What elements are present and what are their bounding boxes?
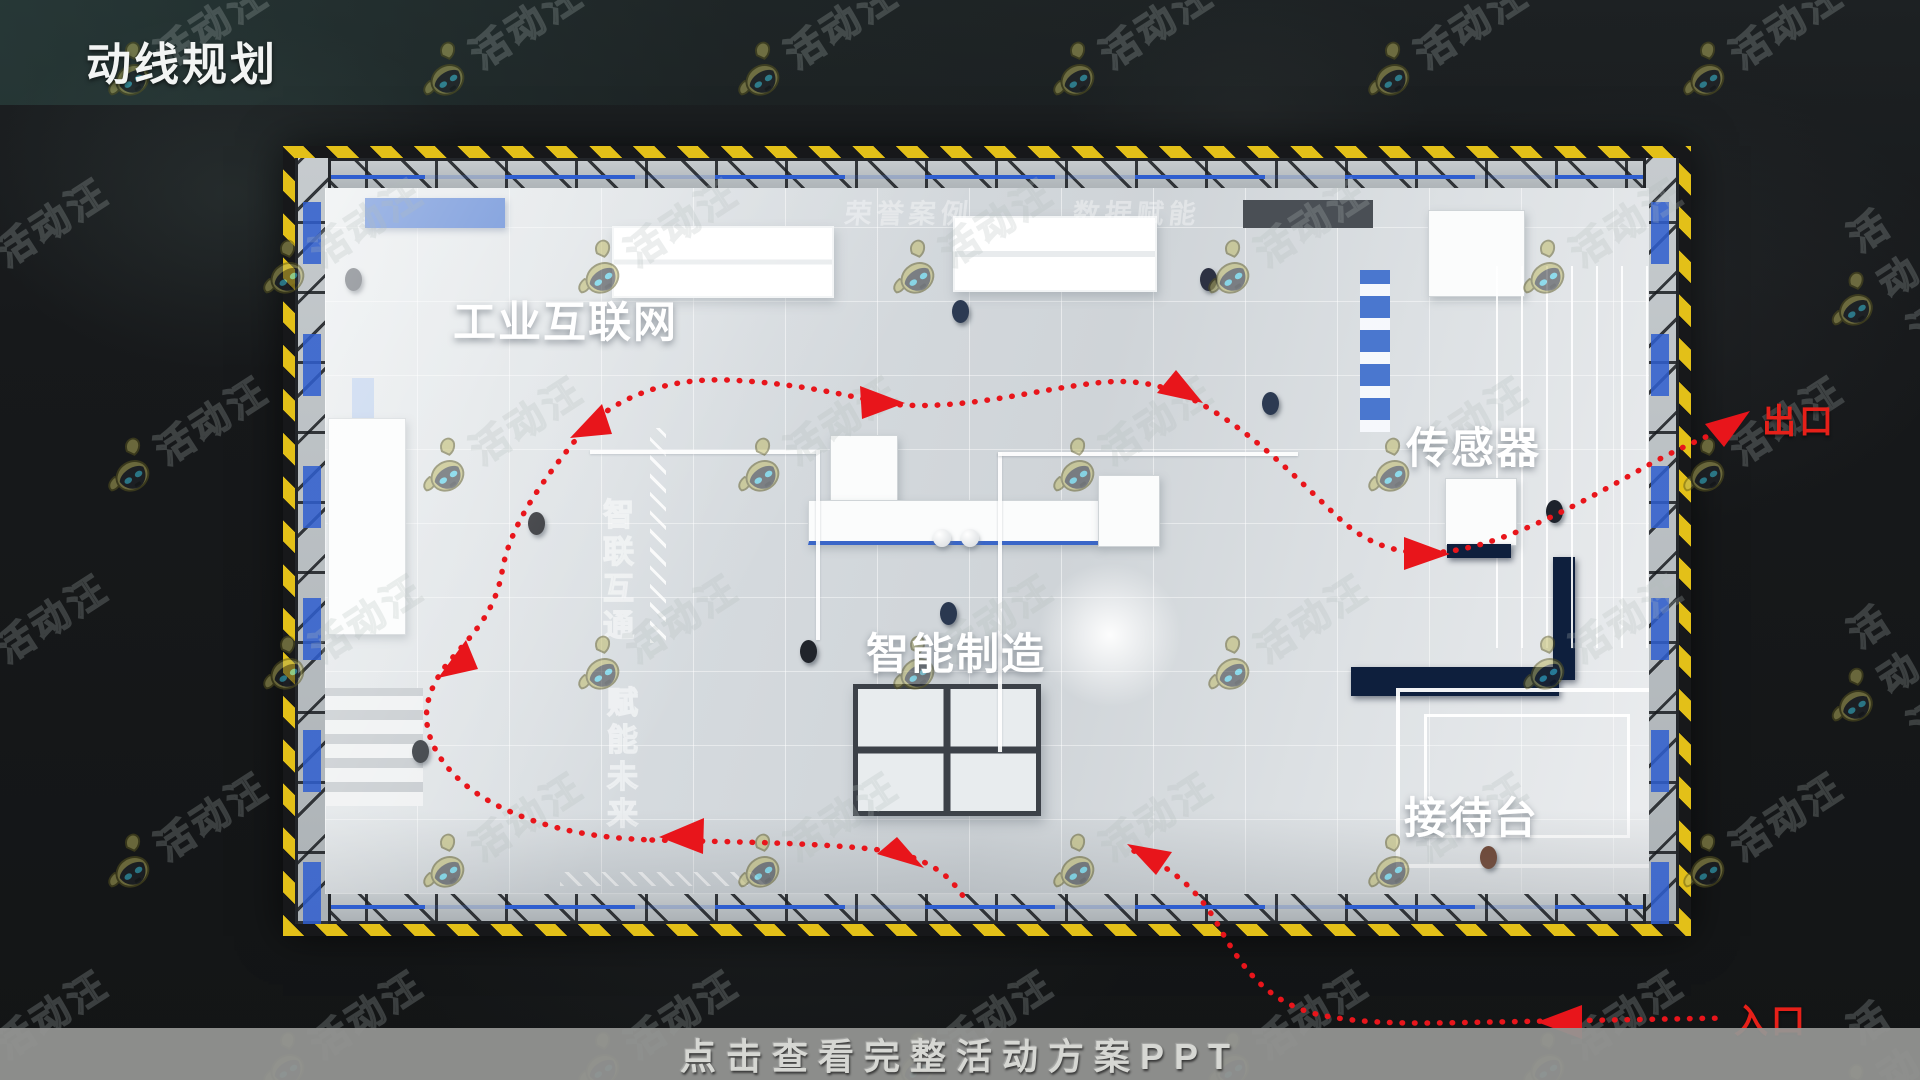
watermark-text: 活动汪 xyxy=(1835,193,1920,354)
booth-furniture xyxy=(816,450,820,640)
mascot-icon xyxy=(0,233,7,310)
mascot-icon xyxy=(1813,661,1890,738)
booth-furniture xyxy=(650,428,666,643)
brand-watermark: 活动汪 xyxy=(720,0,908,113)
mascot-icon xyxy=(0,629,7,706)
person-figure xyxy=(1546,500,1563,523)
floor-plan: 荣誉案例 数据赋能 智联互通 赋能未来 xyxy=(283,146,1691,936)
brand-watermark: 活动汪 xyxy=(0,161,118,310)
person-figure xyxy=(952,300,969,323)
booth-furniture xyxy=(998,452,1002,752)
watermark-text: 活动汪 xyxy=(1717,360,1853,475)
booth-furniture xyxy=(853,684,1041,816)
watermark-text: 活动汪 xyxy=(772,0,908,78)
booth-furniture xyxy=(933,529,951,547)
brand-watermark: 活动汪 xyxy=(1783,589,1920,784)
booth-furniture xyxy=(328,418,406,635)
person-figure xyxy=(1200,268,1217,291)
booth-furniture xyxy=(808,500,1100,545)
booth-furniture xyxy=(1447,544,1511,558)
watermark-text: 活动汪 xyxy=(0,162,118,277)
watermark-text: 活动汪 xyxy=(1087,0,1223,78)
header-tint xyxy=(0,0,1920,105)
watermark-text: 活动汪 xyxy=(142,360,278,475)
booth-furniture xyxy=(1445,478,1517,546)
person-figure xyxy=(800,640,817,663)
brand-watermark: 活动汪 xyxy=(1783,193,1920,388)
person-figure xyxy=(412,740,429,763)
brand-watermark: 活动汪 xyxy=(1665,755,1853,904)
person-figure xyxy=(528,512,545,535)
brand-watermark: 活动汪 xyxy=(1035,0,1223,113)
booth-furniture xyxy=(365,198,505,228)
mascot-icon xyxy=(405,35,482,112)
booth-furniture xyxy=(612,226,834,298)
brand-watermark: 活动汪 xyxy=(1665,0,1853,113)
footer-cta[interactable]: 点击查看完整活动方案PPT xyxy=(0,1028,1920,1080)
mascot-icon xyxy=(1350,35,1427,112)
booth-furniture xyxy=(325,688,423,806)
mascot-icon xyxy=(720,35,797,112)
person-figure xyxy=(1262,392,1279,415)
mascot-icon xyxy=(1665,35,1742,112)
watermark-text: 活动汪 xyxy=(0,558,118,673)
mascot-icon xyxy=(1035,35,1112,112)
mascot-icon xyxy=(90,431,167,508)
watermark-text: 活动汪 xyxy=(1717,756,1853,871)
watermark-text: 活动汪 xyxy=(1717,0,1853,78)
brand-watermark: 活动汪 xyxy=(1665,359,1853,508)
booth-furniture xyxy=(1360,270,1390,432)
brand-watermark: 活动汪 xyxy=(405,0,593,113)
booth-furniture xyxy=(1098,475,1160,547)
booth-furniture xyxy=(1496,266,1649,648)
slide: 动线规划 荣誉案例 数据赋能 智联互通 赋能未来 活动汪活动汪活动汪活动汪活动汪… xyxy=(0,0,1920,1080)
brand-watermark: 活动汪 xyxy=(1350,0,1538,113)
person-figure xyxy=(940,602,957,625)
person-figure xyxy=(345,268,362,291)
faint-vertical-bottom: 赋能未来 xyxy=(597,686,642,834)
watermark-text: 活动汪 xyxy=(142,756,278,871)
brand-watermark: 活动汪 xyxy=(90,755,278,904)
mascot-icon xyxy=(90,827,167,904)
booth-furniture xyxy=(953,216,1157,292)
watermark-text: 活动汪 xyxy=(457,0,593,78)
booth-furniture xyxy=(1035,560,1185,710)
page-title: 动线规划 xyxy=(86,28,278,93)
booth-furniture xyxy=(961,529,979,547)
exit-label: 出口 xyxy=(1762,394,1836,443)
person-figure xyxy=(1480,846,1497,869)
brand-watermark: 活动汪 xyxy=(0,557,118,706)
watermark-text: 活动汪 xyxy=(1835,589,1920,750)
watermark-text: 活动汪 xyxy=(1402,0,1538,78)
booth-furniture xyxy=(1243,200,1373,228)
brand-watermark: 活动汪 xyxy=(90,359,278,508)
mascot-icon xyxy=(1813,265,1890,342)
booth-furniture xyxy=(1424,714,1630,838)
booth-furniture xyxy=(590,450,818,454)
footer-cta-text: 点击查看完整活动方案PPT xyxy=(680,1028,1240,1080)
faint-vertical-top: 智联互通 xyxy=(593,498,638,646)
exhibition-floor: 荣誉案例 数据赋能 智联互通 赋能未来 xyxy=(325,188,1649,894)
booth-furniture xyxy=(998,452,1298,456)
booth-furniture xyxy=(560,872,770,886)
